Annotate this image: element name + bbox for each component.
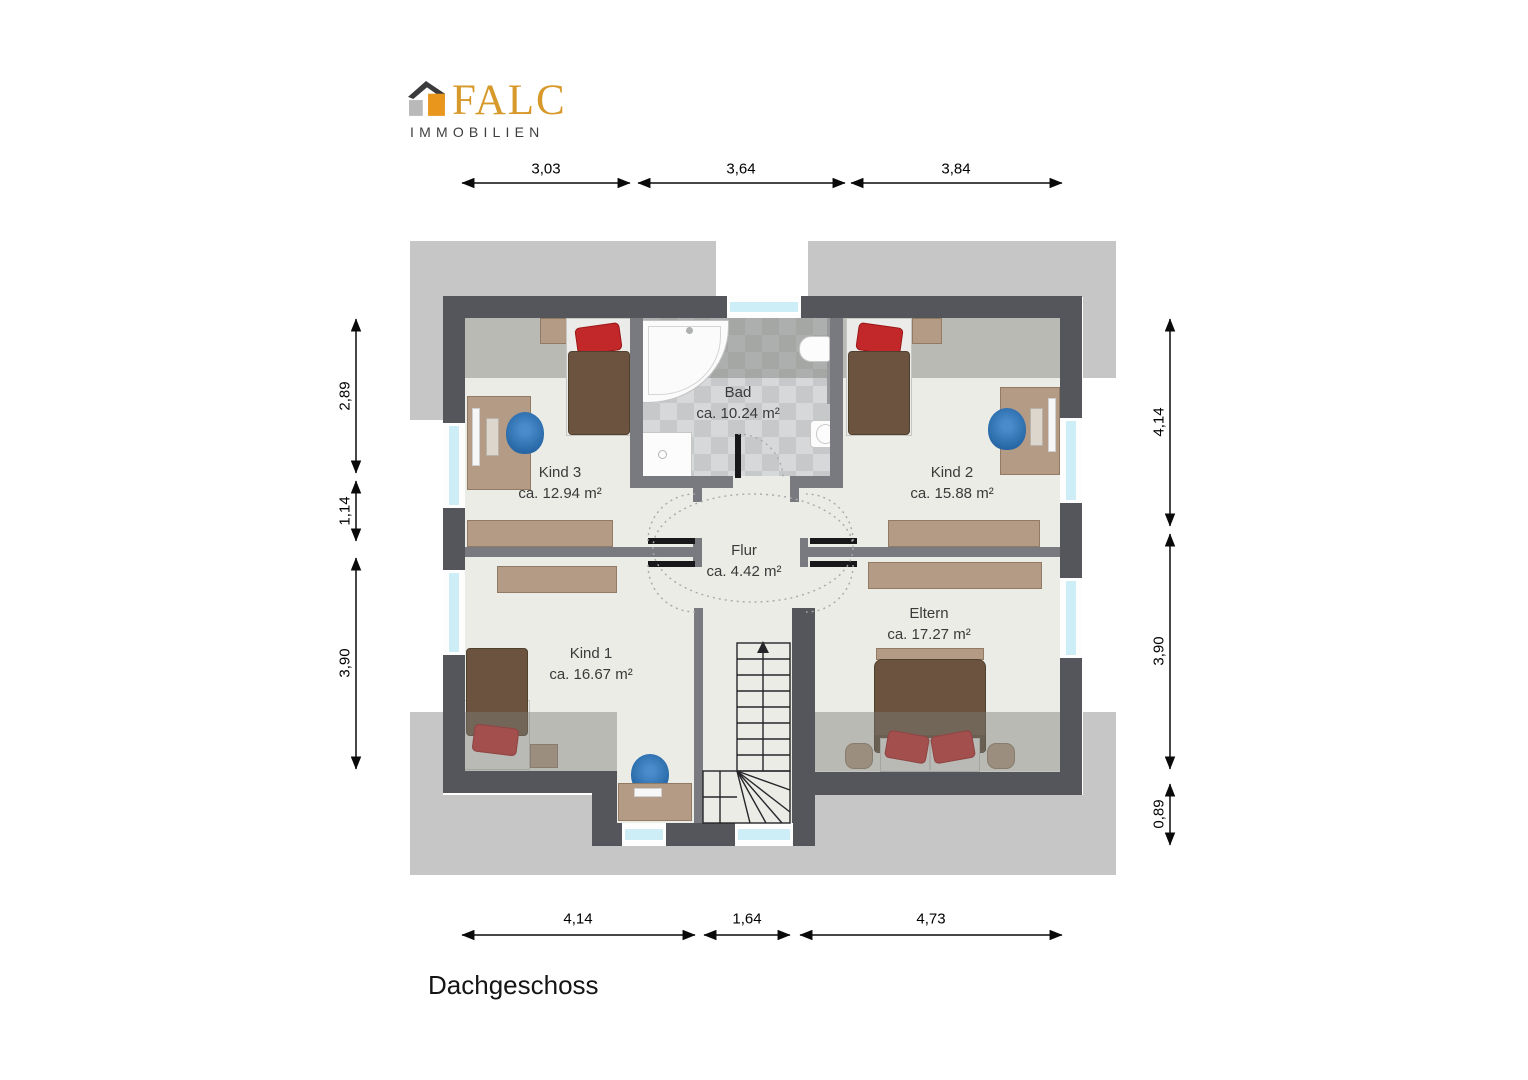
window-kind2 — [1060, 418, 1082, 503]
room-name: Kind 3 — [518, 462, 601, 483]
wall-kind1-bottom — [443, 771, 617, 793]
wall-bath-right — [830, 318, 843, 488]
roof-slope-shade — [465, 712, 617, 771]
wall-bath-left — [630, 318, 643, 488]
wall-stairwell-right — [792, 608, 815, 846]
room-area: ca. 17.27 m² — [887, 624, 970, 645]
room-name: Bad — [696, 382, 779, 403]
window-bath — [727, 296, 801, 318]
nightstand — [912, 318, 942, 344]
toilet — [799, 336, 830, 362]
door-kind2 — [810, 538, 857, 544]
wall-divider-right-cap — [800, 538, 808, 567]
door-kind1 — [648, 561, 695, 567]
room-name: Flur — [706, 540, 781, 561]
wall-stub — [790, 488, 799, 502]
room-area: ca. 12.94 m² — [518, 483, 601, 504]
dim-top-3: 3,84 — [941, 161, 970, 178]
wardrobe-eltern — [868, 562, 1042, 589]
room-name: Kind 1 — [549, 643, 632, 664]
wall-bath-bottom — [630, 476, 733, 488]
dim-right-3: 0,89 — [1151, 799, 1168, 828]
exterior-footprint — [410, 712, 443, 795]
exterior-footprint — [1083, 712, 1116, 795]
room-label-kind1: Kind 1 ca. 16.67 m² — [549, 643, 632, 685]
logo-brand-text: FALC — [452, 79, 567, 122]
wall-exterior-right — [1060, 296, 1082, 795]
dim-top-1: 3,03 — [531, 161, 560, 178]
room-area: ca. 16.67 m² — [549, 664, 632, 685]
sideboard-kind1 — [497, 566, 617, 593]
wall-exterior-left — [443, 296, 465, 793]
bathtub-faucet — [686, 327, 693, 334]
wall-bath-bottom — [790, 476, 843, 488]
monitor — [472, 408, 480, 466]
wall-eltern-bottom — [815, 772, 1082, 795]
door-bath — [735, 434, 741, 478]
blanket — [848, 351, 910, 435]
room-label-kind2: Kind 2 ca. 15.88 m² — [910, 462, 993, 504]
exterior-footprint — [808, 241, 1116, 297]
room-area: ca. 10.24 m² — [696, 403, 779, 424]
dim-bottom-2: 1,64 — [732, 911, 761, 928]
room-label-flur: Flur ca. 4.42 m² — [706, 540, 781, 582]
keyboard — [1030, 408, 1043, 446]
sideboard-kind3 — [467, 520, 613, 547]
room-name: Eltern — [887, 603, 970, 624]
blanket — [568, 351, 630, 435]
wall-stairwell-left — [694, 608, 703, 823]
window-kind1 — [443, 570, 465, 655]
window-kind3 — [443, 423, 465, 508]
room-label-bad: Bad ca. 10.24 m² — [696, 382, 779, 424]
window-stairs — [735, 823, 793, 846]
dim-left-2: 1,14 — [337, 496, 354, 525]
room-label-kind3: Kind 3 ca. 12.94 m² — [518, 462, 601, 504]
wall-stub — [693, 488, 702, 502]
window-kind1-dormer — [622, 823, 666, 846]
door-eltern — [810, 561, 857, 567]
sideboard-kind2 — [888, 520, 1040, 547]
room-area: ca. 4.42 m² — [706, 561, 781, 582]
exterior-footprint — [1083, 297, 1116, 378]
exterior-footprint — [410, 297, 443, 420]
desk-chair — [988, 408, 1026, 450]
keyboard — [486, 418, 499, 456]
exterior-footprint — [410, 241, 716, 297]
dim-right-2: 3,90 — [1151, 636, 1168, 665]
monitor — [1048, 398, 1056, 452]
logo-tagline: IMMOBILIEN — [410, 124, 544, 140]
floor-title: Dachgeschoss — [428, 970, 599, 1001]
floorplan-page: FALC IMMOBILIEN — [0, 0, 1528, 1080]
roof-slope-shade — [815, 712, 1060, 772]
dim-bottom-3: 4,73 — [916, 911, 945, 928]
stairwell-floor — [703, 608, 790, 823]
keyboard — [634, 788, 662, 797]
window-eltern — [1060, 578, 1082, 658]
dim-left-3: 3,90 — [337, 648, 354, 677]
room-area: ca. 15.88 m² — [910, 483, 993, 504]
desk-chair — [506, 412, 544, 454]
room-label-eltern: Eltern ca. 17.27 m² — [887, 603, 970, 645]
dim-left-1: 2,89 — [337, 381, 354, 410]
wall-divider-left — [465, 547, 693, 557]
dim-bottom-1: 4,14 — [563, 911, 592, 928]
dim-top-2: 3,64 — [726, 161, 755, 178]
dim-right-1: 4,14 — [1151, 407, 1168, 436]
room-name: Kind 2 — [910, 462, 993, 483]
shower-drain — [658, 450, 667, 459]
wall-divider-right — [808, 547, 1060, 557]
falc-logo-icon — [408, 80, 446, 118]
door-kind3 — [648, 538, 695, 544]
